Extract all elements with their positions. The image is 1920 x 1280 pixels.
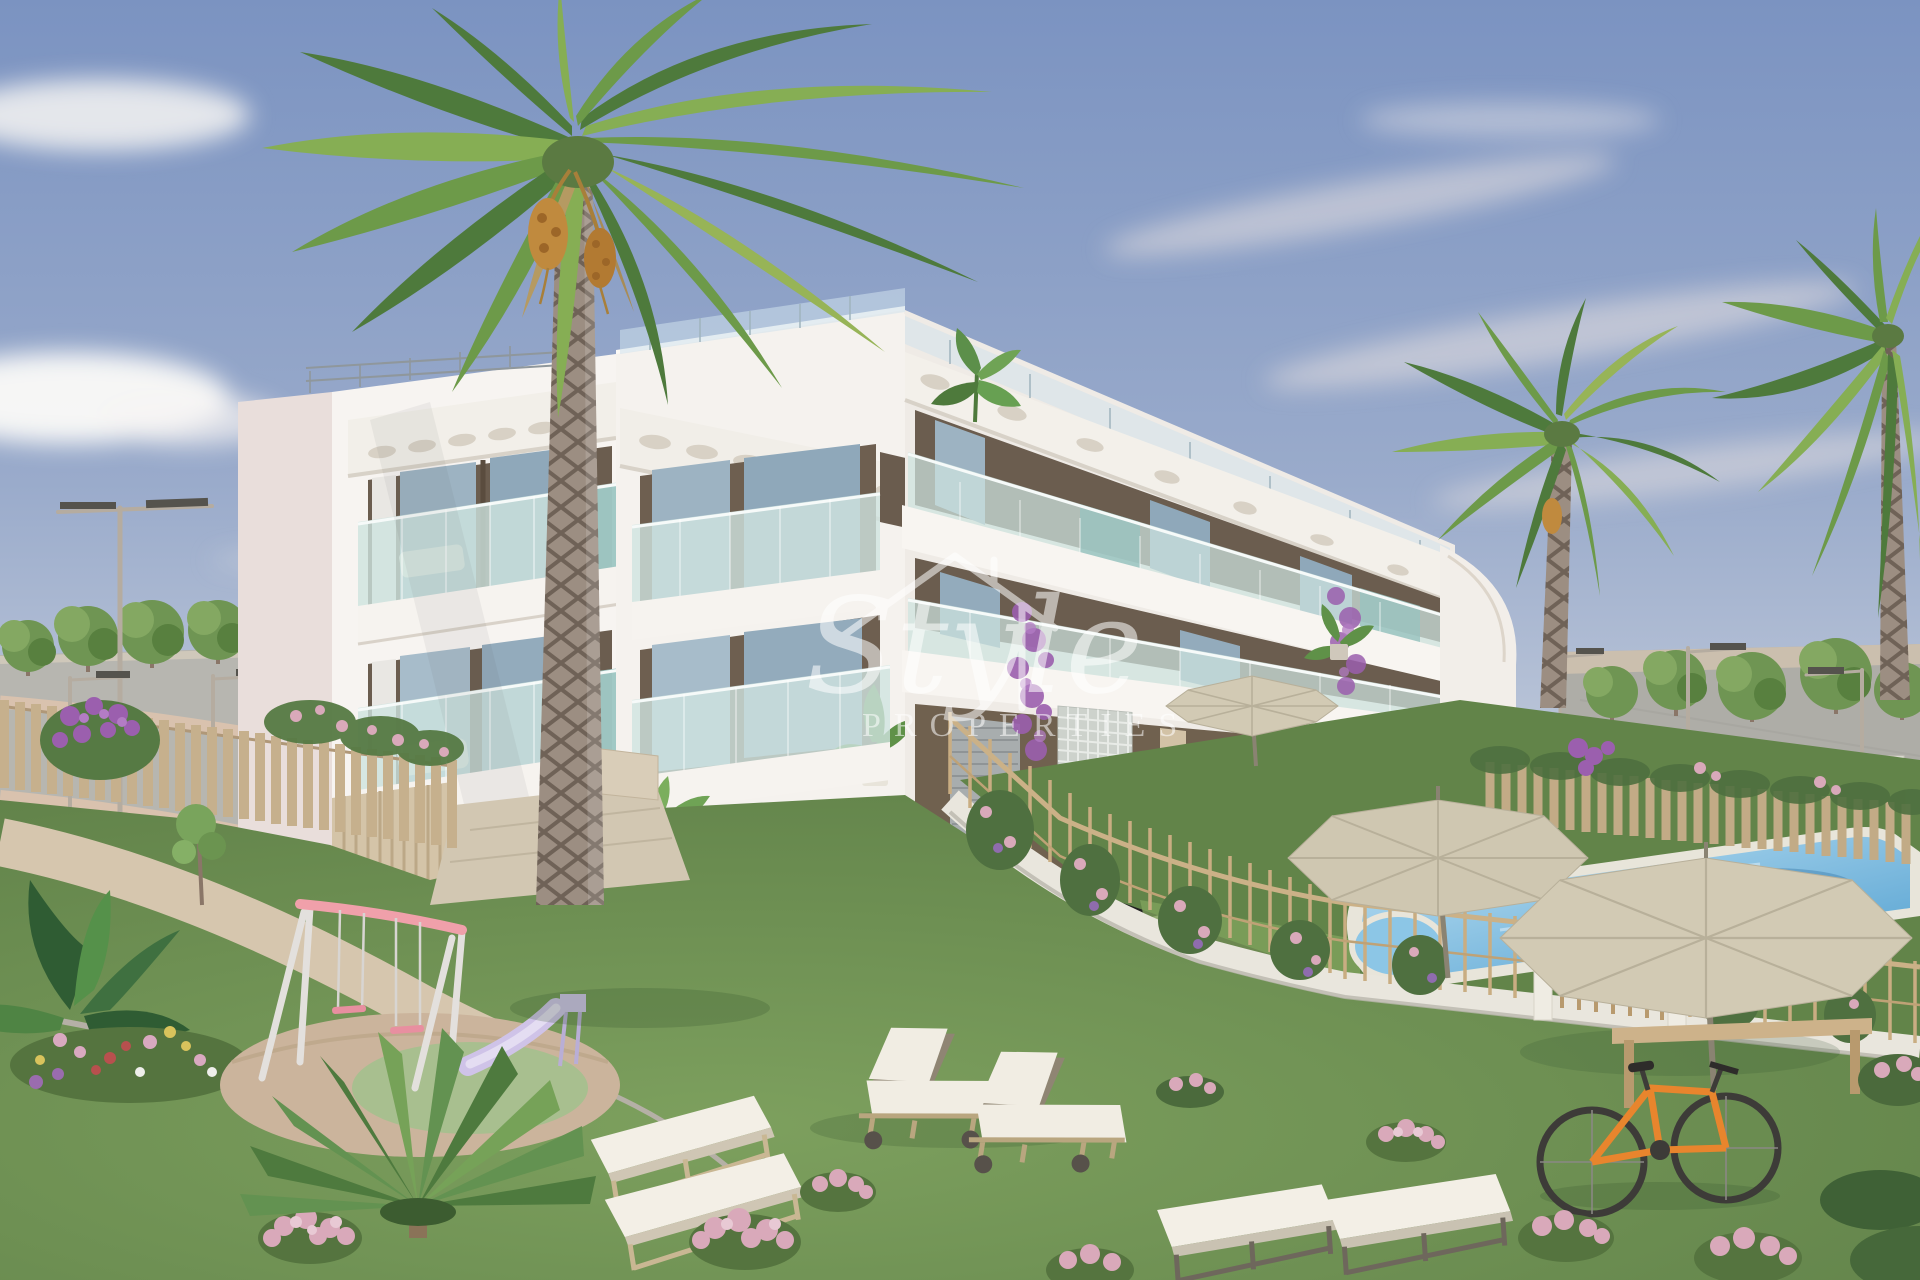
- watermark: Style PROPERTIES: [805, 556, 1190, 744]
- brand-script-text: Style: [805, 570, 1143, 724]
- scene-svg: Style PROPERTIES: [0, 0, 1920, 1280]
- render-stage: Style PROPERTIES: [0, 0, 1920, 1280]
- brand-caps-text: PROPERTIES: [862, 707, 1190, 744]
